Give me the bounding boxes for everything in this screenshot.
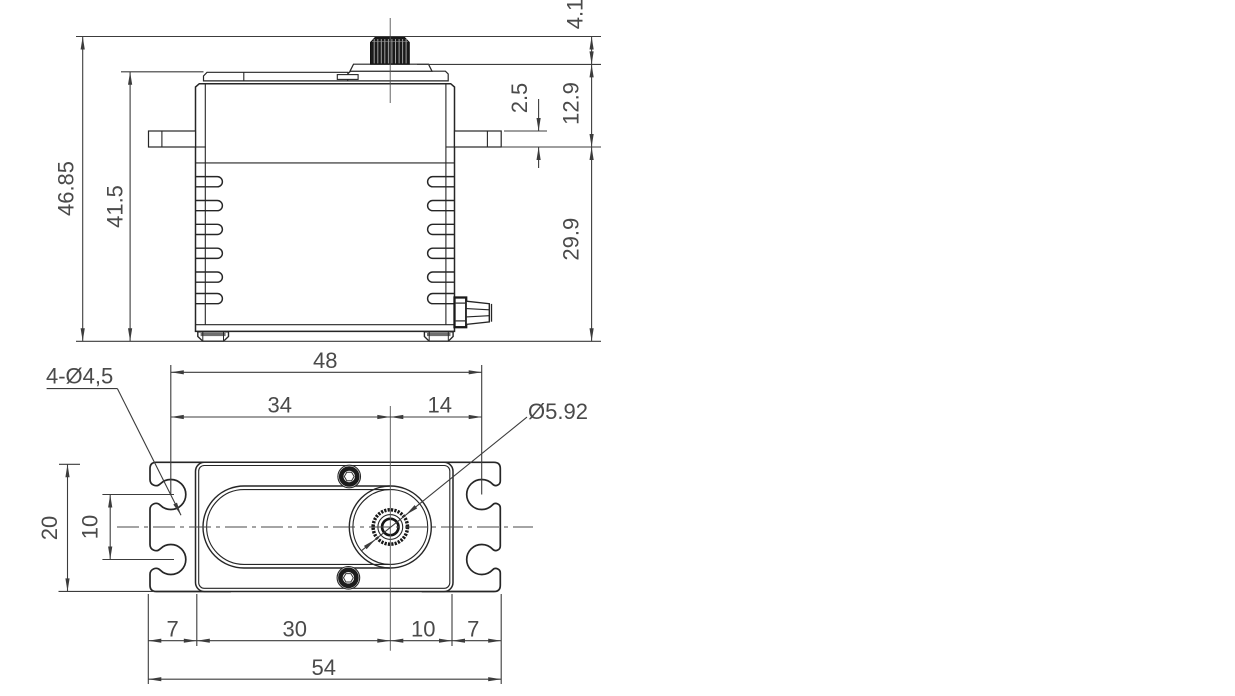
svg-text:Ø5.92: Ø5.92 (528, 399, 588, 424)
svg-text:34: 34 (267, 392, 291, 417)
svg-text:30: 30 (283, 616, 307, 641)
svg-text:48: 48 (313, 348, 337, 373)
svg-text:29.9: 29.9 (559, 218, 584, 261)
svg-text:4-Ø4,5: 4-Ø4,5 (46, 364, 113, 389)
svg-text:10: 10 (411, 616, 435, 641)
svg-text:12.9: 12.9 (559, 82, 584, 125)
svg-text:10: 10 (77, 515, 102, 539)
svg-text:20: 20 (37, 516, 62, 540)
svg-text:14: 14 (428, 392, 452, 417)
svg-text:46.85: 46.85 (54, 161, 79, 216)
svg-text:7: 7 (467, 616, 479, 641)
svg-text:4.1: 4.1 (563, 0, 588, 29)
svg-text:7: 7 (166, 616, 178, 641)
svg-text:54: 54 (311, 655, 335, 680)
svg-text:41.5: 41.5 (102, 185, 127, 228)
svg-text:2.5: 2.5 (507, 83, 532, 114)
